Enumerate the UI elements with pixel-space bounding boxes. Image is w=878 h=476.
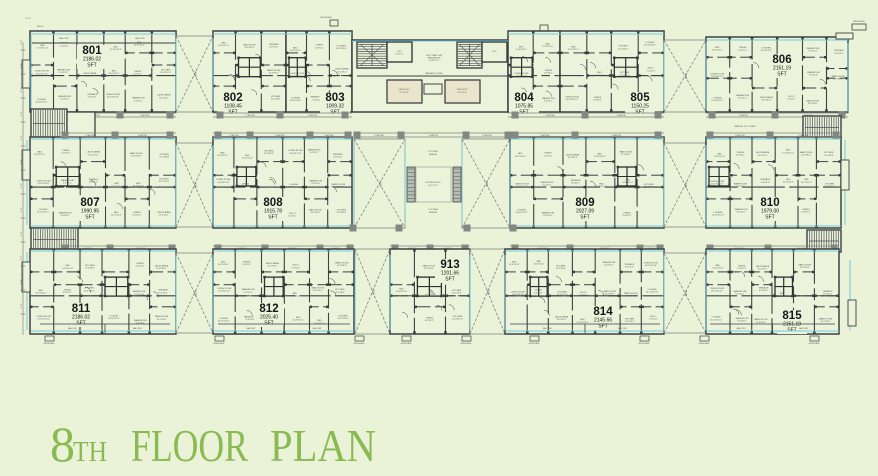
svg-text:13'-2"X6'-4": 13'-2"X6'-4" — [557, 319, 567, 321]
svg-text:13'-2"X6'-4": 13'-2"X6'-4" — [159, 215, 169, 217]
svg-text:MAID ROOM: MAID ROOM — [243, 43, 256, 46]
svg-text:10'-9"X8'-0": 10'-9"X8'-0" — [269, 73, 279, 75]
svg-text:815: 815 — [782, 310, 802, 322]
svg-text:LAY-BY AREA: LAY-BY AREA — [555, 315, 569, 318]
svg-text:14'-2.5": 14'-2.5" — [21, 135, 23, 141]
svg-text:8'-0"X5'-0": 8'-0"X5'-0" — [246, 319, 255, 321]
svg-text:9'-0"X5'-2": 9'-0"X5'-2" — [738, 98, 747, 100]
svg-text:7'-4"X4'-2": 7'-4"X4'-2" — [647, 70, 656, 72]
svg-text:LAY-BY AREA: LAY-BY AREA — [566, 154, 580, 157]
svg-text:14'-2.5": 14'-2.5" — [21, 255, 23, 261]
svg-text:VOID: VOID — [379, 180, 383, 186]
svg-text:20'-0"X13'-10": 20'-0"X13'-10" — [291, 76, 303, 78]
svg-text:20'-0"X13'-10": 20'-0"X13'-10" — [107, 97, 119, 99]
svg-text:20'-0"X13'-10": 20'-0"X13'-10" — [512, 294, 524, 296]
svg-text:10'-6"X12'-0": 10'-6"X12'-0" — [509, 264, 520, 266]
svg-text:WASHROOM: WASHROOM — [736, 317, 749, 320]
svg-text:WASHROOM: WASHROOM — [61, 179, 74, 182]
svg-text:10'-6"X12'-0": 10'-6"X12'-0" — [777, 295, 788, 297]
svg-text:BRIDGE 10'-0" WIDE: BRIDGE 10'-0" WIDE — [735, 126, 756, 128]
svg-text:9'-0"X5'-2": 9'-0"X5'-2" — [543, 184, 552, 186]
svg-text:PLANTER: PLANTER — [374, 134, 384, 137]
svg-text:8'-0"X5'-0": 8'-0"X5'-0" — [737, 211, 746, 213]
svg-text:10'-6"X12'-0": 10'-6"X12'-0" — [34, 154, 45, 156]
svg-text:9'-0"X5'-2": 9'-0"X5'-2" — [244, 292, 253, 294]
svg-text:12'-10"X12'-0": 12'-10"X12'-0" — [782, 152, 794, 154]
svg-text:14'-2.5": 14'-2.5" — [25, 18, 31, 20]
svg-text:16'-10"X12'-0": 16'-10"X12'-0" — [288, 186, 300, 188]
svg-text:6'-0"X5'-2": 6'-0"X5'-2" — [802, 211, 811, 213]
svg-text:14'-2.5": 14'-2.5" — [21, 303, 23, 309]
svg-text:10'-4"X12'-0": 10'-4"X12'-0" — [452, 318, 463, 320]
svg-text:LAY-BY AREA: LAY-BY AREA — [157, 211, 171, 214]
svg-text:12'-4"X8'-6": 12'-4"X8'-6" — [625, 321, 635, 323]
svg-text:PLANTER: PLANTER — [612, 134, 622, 137]
svg-text:10'-6"X12'-0": 10'-6"X12'-0" — [714, 156, 725, 158]
svg-text:13'-2"X6'-4": 13'-2"X6'-4" — [337, 71, 347, 73]
svg-text:12'-4"X8'-6": 12'-4"X8'-6" — [452, 292, 462, 294]
svg-text:16'-10"X12'-0": 16'-10"X12'-0" — [712, 214, 724, 216]
svg-text:9'-0"X5'-2": 9'-0"X5'-2" — [134, 100, 143, 102]
svg-text:WASHROOM: WASHROOM — [308, 148, 321, 151]
svg-text:14'-2.5": 14'-2.5" — [21, 63, 23, 69]
svg-text:14'-2.5": 14'-2.5" — [21, 231, 23, 237]
svg-text:LAY-BY AREA: LAY-BY AREA — [155, 264, 169, 267]
svg-text:6'-0"X5'-2": 6'-0"X5'-2" — [534, 292, 543, 294]
svg-text:BRIDGE FACE: BRIDGE FACE — [320, 16, 332, 19]
svg-text:BRIDGE FACE: BRIDGE FACE — [853, 20, 865, 23]
svg-text:10'-4"X12'-0": 10'-4"X12'-0" — [160, 72, 171, 74]
svg-text:PLANTER: PLANTER — [482, 134, 492, 137]
svg-text:WASHROOM: WASHROOM — [542, 97, 555, 100]
svg-text:10'-9"X8'-0": 10'-9"X8'-0" — [821, 321, 831, 323]
svg-text:SFT: SFT — [76, 321, 85, 327]
svg-text:TERRACE: TERRACE — [333, 153, 344, 156]
svg-text:LAY-BY AREA: LAY-BY AREA — [266, 262, 280, 265]
svg-text:WASHROOM: WASHROOM — [57, 68, 70, 71]
svg-text:PLANTER: PLANTER — [617, 114, 627, 117]
svg-text:10'-6"X12'-0": 10'-6"X12'-0" — [515, 156, 526, 158]
svg-text:13'-1"X7'-0": 13'-1"X7'-0" — [428, 185, 439, 187]
svg-text:BRIDGE: BRIDGE — [429, 154, 437, 156]
svg-text:8'-0"X5'-0": 8'-0"X5'-0" — [60, 99, 69, 101]
svg-text:10'-9"X8'-0": 10'-9"X8'-0" — [833, 79, 843, 81]
svg-text:9'-0"X5'-2": 9'-0"X5'-2" — [310, 152, 319, 154]
svg-text:10'-6"X12'-0": 10'-6"X12'-0" — [293, 320, 304, 322]
svg-text:10'-6"X12'-0": 10'-6"X12'-0" — [35, 293, 46, 295]
svg-text:12'-10"X12'-0": 12'-10"X12'-0" — [577, 322, 589, 324]
svg-text:913: 913 — [440, 259, 459, 271]
svg-text:MAID ROOM: MAID ROOM — [799, 263, 812, 266]
svg-text:SFT: SFT — [765, 215, 774, 221]
svg-text:13'-2"X6'-4": 13'-2"X6'-4" — [85, 76, 95, 78]
svg-text:10'-6"X12'-0": 10'-6"X12'-0" — [783, 181, 794, 183]
svg-text:SFT: SFT — [635, 110, 644, 116]
svg-text:BALCONY: BALCONY — [737, 327, 747, 330]
svg-text:20'-0"X13'-10": 20'-0"X13'-10" — [515, 76, 527, 78]
svg-text:LAY-BY AREA: LAY-BY AREA — [83, 72, 97, 75]
svg-text:14'-9"X12'-0": 14'-9"X12'-0" — [533, 264, 544, 266]
svg-text:MAID ROOM: MAID ROOM — [603, 290, 616, 293]
svg-text:805: 805 — [630, 92, 650, 104]
svg-text:6'-0"X5'-2": 6'-0"X5'-2" — [63, 292, 72, 294]
svg-text:PLANTER: PLANTER — [85, 134, 95, 137]
svg-text:10'-6"X12'-0": 10'-6"X12'-0" — [596, 186, 607, 188]
svg-text:10'-4"X12'-0": 10'-4"X12'-0" — [619, 75, 630, 77]
svg-text:9'-0" WIDE: 9'-0" WIDE — [428, 209, 438, 211]
svg-text:12'-4"X8'-6": 12'-4"X8'-6" — [824, 155, 834, 157]
svg-text:12'-10"X12'-0": 12'-10"X12'-0" — [289, 296, 301, 298]
svg-text:LAY-BY AREA: LAY-BY AREA — [335, 68, 349, 71]
svg-text:10'-6"X12'-0": 10'-6"X12'-0" — [108, 73, 119, 75]
svg-text:TERRACE: TERRACE — [624, 263, 635, 266]
svg-text:8: 8 — [50, 416, 75, 471]
svg-text:16'-10"X12'-0": 16'-10"X12'-0" — [516, 212, 528, 214]
svg-text:10'-9"X8'-0": 10'-9"X8'-0" — [756, 322, 766, 324]
svg-text:7'-4"X4'-2": 7'-4"X4'-2" — [787, 99, 796, 101]
svg-text:16'-10"X12'-0": 16'-10"X12'-0" — [108, 318, 120, 320]
svg-text:PASSAGE 9' WIDE: PASSAGE 9' WIDE — [425, 72, 443, 75]
svg-text:20'-0"X13'-10": 20'-0"X13'-10" — [217, 182, 229, 184]
svg-text:6'-0"X5'-2": 6'-0"X5'-2" — [544, 155, 553, 157]
svg-text:BALCONY: BALCONY — [618, 327, 628, 330]
svg-text:WASHROOM: WASHROOM — [132, 97, 145, 100]
svg-text:TERRACE: TERRACE — [823, 290, 834, 293]
svg-text:10'-4"X12'-0": 10'-4"X12'-0" — [824, 186, 835, 188]
svg-text:9'-0" WIDE: 9'-0" WIDE — [428, 151, 438, 153]
svg-text:SFT: SFT — [519, 110, 528, 116]
svg-text:10'-6"X12'-0": 10'-6"X12'-0" — [568, 49, 579, 51]
svg-text:14'-9"X12'-0": 14'-9"X12'-0" — [622, 182, 633, 184]
svg-text:812: 812 — [259, 303, 278, 315]
svg-text:13'-2"X6'-4": 13'-2"X6'-4" — [568, 157, 578, 159]
svg-text:WARD ROOM: WARD ROOM — [819, 317, 833, 320]
svg-text:BALCONY: BALCONY — [246, 327, 256, 330]
svg-text:PLANTER: PLANTER — [735, 134, 745, 137]
svg-text:20'-0"X13'-10": 20'-0"X13'-10" — [711, 184, 723, 186]
svg-text:6'-0"X5'-2": 6'-0"X5'-2" — [136, 266, 145, 268]
svg-text:WASHROOM: WASHROOM — [735, 208, 748, 211]
svg-text:12'-4"X8'-6": 12'-4"X8'-6" — [618, 48, 628, 50]
svg-text:20'-0"X13'-10": 20'-0"X13'-10" — [36, 73, 48, 75]
svg-text:16'-10"X12'-0": 16'-10"X12'-0" — [290, 100, 302, 102]
svg-text:WARD ROOM: WARD ROOM — [754, 318, 768, 321]
svg-text:20'-0"X13'-10": 20'-0"X13'-10" — [645, 265, 657, 267]
svg-text:12'-4"X8'-6": 12'-4"X8'-6" — [556, 268, 566, 270]
svg-text:10'-4"X12'-0": 10'-4"X12'-0" — [761, 50, 772, 52]
svg-text:TERRACE: TERRACE — [571, 179, 582, 182]
svg-text:MAID ROOM: MAID ROOM — [309, 209, 322, 212]
svg-text:20'-0"X13'-10": 20'-0"X13'-10" — [566, 99, 578, 101]
svg-text:WASHROOM: WASHROOM — [807, 47, 820, 50]
svg-text:WASHROOM: WASHROOM — [134, 319, 147, 322]
svg-text:12'-4"X8'-6": 12'-4"X8'-6" — [85, 267, 95, 269]
svg-text:BALCONY: BALCONY — [543, 327, 553, 330]
svg-text:13'-2"X6'-4": 13'-2"X6'-4" — [159, 97, 169, 99]
svg-text:6'-0"X5'-2": 6'-0"X5'-2" — [623, 215, 632, 217]
svg-text:811: 811 — [72, 303, 91, 315]
svg-text:BALCONY: BALCONY — [799, 327, 809, 330]
svg-text:8'-0"X4'-0": 8'-0"X4'-0" — [571, 182, 580, 184]
svg-text:SFT: SFT — [445, 277, 454, 283]
svg-text:8'-0"X4'-0": 8'-0"X4'-0" — [823, 294, 832, 296]
svg-text:8'-0"X5'-0": 8'-0"X5'-0" — [605, 264, 614, 266]
svg-text:BRIDGE: BRIDGE — [37, 26, 43, 28]
svg-text:WARD ROOM: WARD ROOM — [155, 315, 169, 318]
svg-text:VOID: VOID — [194, 290, 198, 296]
svg-text:10'-6"X12'-0": 10'-6"X12'-0" — [217, 155, 228, 157]
svg-text:12'-4"X8'-6": 12'-4"X8'-6" — [644, 187, 654, 189]
svg-text:8'-0"X7'-0": 8'-0"X7'-0" — [396, 54, 404, 56]
svg-text:TH: TH — [73, 436, 107, 468]
svg-text:20'-0"X13'-10": 20'-0"X13'-10" — [711, 291, 723, 293]
svg-text:WARD ROOM: WARD ROOM — [267, 69, 281, 72]
svg-text:14'-9"X12'-0": 14'-9"X12'-0" — [542, 46, 553, 48]
svg-text:WASHROOM: WASHROOM — [58, 95, 71, 98]
svg-text:10'-4"X12'-0": 10'-4"X12'-0" — [557, 294, 568, 296]
svg-text:WARD ROOM: WARD ROOM — [624, 292, 638, 295]
svg-text:12'-4"X7'-8": 12'-4"X7'-8" — [457, 92, 467, 94]
svg-text:10'-9"X8'-0": 10'-9"X8'-0" — [626, 296, 636, 298]
svg-text:809: 809 — [575, 197, 594, 209]
svg-text:801: 801 — [82, 45, 102, 57]
svg-text:8'-0"X4'-0": 8'-0"X4'-0" — [270, 47, 279, 49]
svg-text:6'-0"X5'-2": 6'-0"X5'-2" — [736, 154, 745, 156]
svg-text:PLANTER: PLANTER — [739, 114, 749, 117]
svg-text:16'-10"X12'-0": 16'-10"X12'-0" — [644, 44, 656, 46]
svg-text:WASHROOM: WASHROOM — [734, 290, 747, 293]
svg-text:20'-0"X13'-10": 20'-0"X13'-10" — [218, 291, 230, 293]
svg-text:PLANTER: PLANTER — [245, 114, 255, 117]
svg-text:808: 808 — [263, 197, 283, 209]
svg-text:VOID: VOID — [684, 182, 688, 188]
svg-text:TERRACE: TERRACE — [158, 289, 169, 292]
svg-text:8'-0"X5'-0": 8'-0"X5'-0" — [738, 320, 747, 322]
svg-text:WASHROOM: WASHROOM — [309, 179, 322, 182]
svg-text:BALCONY: BALCONY — [68, 327, 78, 330]
svg-text:10'-9"X8'-0": 10'-9"X8'-0" — [313, 290, 323, 292]
svg-text:PLANTER: PLANTER — [140, 114, 150, 117]
svg-text:BALCONY: BALCONY — [133, 327, 143, 330]
svg-text:10'-6"X12'-0": 10'-6"X12'-0" — [712, 50, 723, 52]
svg-text:14'-9"X12'-0": 14'-9"X12'-0" — [62, 268, 73, 270]
svg-text:10'-4"X12'-0": 10'-4"X12'-0" — [84, 290, 95, 292]
svg-text:PLANTER: PLANTER — [798, 134, 808, 137]
svg-text:CIRCU-LIFT: CIRCU-LIFT — [398, 89, 410, 91]
svg-text:16'-10"X12'-0": 16'-10"X12'-0" — [710, 319, 722, 321]
svg-text:TERRACE: TERRACE — [760, 178, 771, 181]
svg-text:14'-2.5": 14'-2.5" — [21, 39, 23, 45]
svg-text:9'-0"X5'-2": 9'-0"X5'-2" — [544, 100, 553, 102]
svg-text:SITTING DECK: SITTING DECK — [425, 182, 441, 184]
svg-text:20'-0"X13'-10": 20'-0"X13'-10" — [711, 76, 723, 78]
svg-text:16'-10"X12'-0": 16'-10"X12'-0" — [36, 102, 48, 104]
svg-text:SFT: SFT — [580, 215, 589, 221]
svg-text:6'-0"X5'-2": 6'-0"X5'-2" — [738, 50, 747, 52]
svg-text:VOID: VOID — [684, 290, 688, 296]
svg-text:MAID ROOM: MAID ROOM — [130, 152, 143, 155]
svg-text:12'-10"X12'-0": 12'-10"X12'-0" — [110, 49, 122, 51]
svg-text:TERRACE: TERRACE — [834, 49, 845, 52]
svg-text:14'-2.5": 14'-2.5" — [21, 111, 23, 117]
svg-text:6'-0"X5'-2": 6'-0"X5'-2" — [315, 47, 324, 49]
svg-text:MAID ROOM: MAID ROOM — [800, 151, 813, 154]
svg-text:VOID: VOID — [684, 73, 688, 79]
svg-text:SFT: SFT — [85, 215, 94, 221]
svg-text:10'-9"X8'-0": 10'-9"X8'-0" — [808, 103, 818, 105]
svg-text:8'-0"X4'-0": 8'-0"X4'-0" — [761, 182, 770, 184]
svg-text:810: 810 — [760, 197, 779, 209]
svg-text:CIRCU-LIFT: CIRCU-LIFT — [456, 89, 468, 91]
svg-text:8'-0"X5'-0": 8'-0"X5'-0" — [543, 215, 552, 217]
svg-text:13'-2"X6'-4": 13'-2"X6'-4" — [761, 100, 771, 102]
svg-text:12'-4"X7'-8": 12'-4"X7'-8" — [399, 92, 409, 94]
svg-text:6'-0"X5'-2": 6'-0"X5'-2" — [737, 268, 746, 270]
svg-text:14'-2.5": 14'-2.5" — [21, 87, 23, 93]
svg-text:14'-2.5": 14'-2.5" — [21, 279, 23, 285]
svg-text:WASHROOM: WASHROOM — [807, 71, 820, 74]
svg-text:8'-0"X5'-0": 8'-0"X5'-0" — [809, 75, 818, 77]
svg-text:TERRACE: TERRACE — [269, 43, 280, 46]
svg-text:10'-9"X8'-0": 10'-9"X8'-0" — [800, 267, 810, 269]
svg-text:PLANTER: PLANTER — [138, 134, 148, 137]
svg-text:16'-10"X12'-0": 16'-10"X12'-0" — [37, 212, 49, 214]
svg-text:MAID ROOM: MAID ROOM — [423, 265, 436, 268]
svg-text:TERRACE: TERRACE — [88, 178, 99, 181]
svg-text:MAID ROOM: MAID ROOM — [311, 287, 324, 290]
svg-text:PLANTER: PLANTER — [324, 134, 334, 137]
svg-text:10'-9"X8'-0": 10'-9"X8'-0" — [244, 47, 254, 49]
svg-text:814: 814 — [593, 306, 613, 318]
svg-text:PLANTER: PLANTER — [429, 134, 439, 137]
svg-text:14'-2.5": 14'-2.5" — [21, 183, 23, 189]
svg-text:8'-0"X5'-0": 8'-0"X5'-0" — [311, 183, 320, 185]
svg-text:13'-2"X6'-4": 13'-2"X6'-4" — [88, 154, 98, 156]
svg-text:14'-9"X12'-0": 14'-9"X12'-0" — [133, 185, 144, 187]
svg-text:10'-6"X12'-0": 10'-6"X12'-0" — [218, 264, 229, 266]
svg-text:13'-2"X6'-4": 13'-2"X6'-4" — [757, 269, 767, 271]
svg-text:MAID ROOM: MAID ROOM — [620, 150, 633, 153]
svg-text:7'-4"X4'-2": 7'-4"X4'-2" — [649, 319, 658, 321]
svg-text:10'-6"X12'-0": 10'-6"X12'-0" — [516, 49, 527, 51]
svg-text:6'-0"X5'-2": 6'-0"X5'-2" — [60, 45, 69, 47]
svg-text:6'-0"X5'-2": 6'-0"X5'-2" — [242, 264, 251, 266]
svg-text:LAY-BY AREA: LAY-BY AREA — [760, 96, 774, 99]
svg-text:SFT: SFT — [268, 215, 277, 221]
svg-text:13'-2"X6'-4": 13'-2"X6'-4" — [156, 268, 166, 270]
svg-text:806: 806 — [772, 54, 791, 66]
svg-text:10'-9"X8'-0": 10'-9"X8'-0" — [621, 154, 631, 156]
svg-text:WARD ROOM: WARD ROOM — [831, 75, 845, 78]
svg-text:10'-6"X12'-0": 10'-6"X12'-0" — [111, 215, 122, 217]
svg-text:WASHROOM: WASHROOM — [736, 94, 749, 97]
svg-text:10'-9"X8'-0": 10'-9"X8'-0" — [424, 268, 434, 270]
svg-text:LAY-BY AREA: LAY-BY AREA — [87, 151, 101, 154]
svg-text:LAY-BY AREA: LAY-BY AREA — [157, 94, 171, 97]
svg-text:14'-9"X12'-0": 14'-9"X12'-0" — [425, 294, 436, 296]
svg-text:12'-4"X8'-6": 12'-4"X8'-6" — [336, 212, 346, 214]
svg-text:SFT: SFT — [330, 110, 339, 116]
svg-text:12'-10"X12'-0": 12'-10"X12'-0" — [111, 186, 123, 188]
svg-text:SFT: SFT — [777, 72, 786, 78]
svg-text:14'-2.5": 14'-2.5" — [21, 159, 23, 165]
svg-text:PLANTER: PLANTER — [308, 114, 318, 117]
svg-text:10'-4"X12'-0": 10'-4"X12'-0" — [158, 181, 169, 183]
svg-text:7'-4"X4'-2": 7'-4"X4'-2" — [291, 267, 300, 269]
svg-text:SFT: SFT — [87, 63, 96, 69]
svg-text:VOID: VOID — [372, 288, 376, 294]
svg-text:VOID: VOID — [487, 288, 491, 294]
svg-text:BALCONY: BALCONY — [135, 37, 145, 40]
svg-text:9'-0"X5'-2": 9'-0"X5'-2" — [135, 294, 144, 296]
svg-text:16'-10"X12'-0": 16'-10"X12'-0" — [218, 321, 230, 323]
svg-text:7'-4"X4'-2": 7'-4"X4'-2" — [288, 216, 297, 218]
svg-text:10'-4"X12'-0": 10'-4"X12'-0" — [338, 318, 349, 320]
svg-text:20'-0"X13'-10": 20'-0"X13'-10" — [516, 186, 528, 188]
svg-text:VOID: VOID — [485, 180, 489, 186]
svg-text:TERRACE: TERRACE — [758, 287, 769, 290]
svg-text:SFT: SFT — [228, 110, 237, 116]
svg-text:VOID: VOID — [194, 182, 198, 188]
svg-text:PLANTER: PLANTER — [275, 134, 285, 137]
svg-text:9'-0"X5'-2": 9'-0"X5'-2" — [809, 51, 818, 53]
svg-text:8'-0"X4'-0": 8'-0"X4'-0" — [89, 182, 98, 184]
svg-text:WASHROOM: WASHROOM — [734, 183, 747, 186]
svg-text:12'-4"X8'-6": 12'-4"X8'-6" — [271, 99, 281, 101]
svg-text:PLANTER: PLANTER — [545, 114, 555, 117]
svg-text:BALCONY: BALCONY — [312, 327, 322, 330]
svg-text:WASHROOM: WASHROOM — [541, 181, 554, 184]
svg-text:14'-9"X12'-0": 14'-9"X12'-0" — [594, 75, 605, 77]
svg-text:8'-0"X4'-0": 8'-0"X4'-0" — [333, 157, 342, 159]
svg-text:FLOOR: FLOOR — [131, 420, 248, 471]
svg-text:WASHROOM: WASHROOM — [242, 288, 255, 291]
svg-text:16'-10"X12'-0": 16'-10"X12'-0" — [646, 291, 658, 293]
svg-text:10'-9"X8'-0": 10'-9"X8'-0" — [310, 212, 320, 214]
svg-text:20'-0"X13'-10": 20'-0"X13'-10" — [38, 318, 50, 320]
svg-text:10'-6"X12'-0": 10'-6"X12'-0" — [712, 267, 723, 269]
svg-text:10'-6"X12'-0": 10'-6"X12'-0" — [37, 48, 48, 50]
svg-text:WASHROOM: WASHROOM — [541, 212, 554, 215]
svg-text:14'-9"X12'-0": 14'-9"X12'-0" — [801, 182, 812, 184]
svg-text:12'-4"X8'-6": 12'-4"X8'-6" — [264, 153, 274, 155]
svg-text:20'-0"X13'-10": 20'-0"X13'-10" — [289, 153, 301, 155]
svg-text:13'-2"X6'-4": 13'-2"X6'-4" — [757, 155, 767, 157]
svg-text:7'-4"X4'-2": 7'-4"X4'-2" — [579, 295, 588, 297]
svg-text:10'-9"X8'-0": 10'-9"X8'-0" — [157, 319, 167, 321]
svg-text:14'-9"X12'-0": 14'-9"X12'-0" — [134, 45, 145, 47]
svg-text:807: 807 — [80, 197, 99, 209]
svg-text:6'-0"X5'-2": 6'-0"X5'-2" — [133, 214, 142, 216]
svg-text:6'-0"X5'-2": 6'-0"X5'-2" — [593, 100, 602, 102]
svg-text:8'-0"X4'-0": 8'-0"X4'-0" — [759, 290, 768, 292]
svg-text:12'-4"X8'-6": 12'-4"X8'-6" — [335, 292, 345, 294]
svg-text:WASHROOM: WASHROOM — [133, 290, 146, 293]
svg-text:BALCONY: BALCONY — [59, 37, 69, 40]
svg-text:WASHROOM: WASHROOM — [603, 261, 616, 264]
svg-text:9'-0"X5'-2": 9'-0"X5'-2" — [59, 72, 68, 74]
svg-text:6'-0"X5'-2": 6'-0"X5'-2" — [133, 74, 142, 76]
svg-text:803: 803 — [325, 92, 344, 104]
svg-text:VOID: VOID — [194, 71, 198, 77]
svg-text:10'-9"X8'-0": 10'-9"X8'-0" — [801, 155, 811, 157]
svg-text:10'-9"X8'-0": 10'-9"X8'-0" — [131, 156, 141, 158]
svg-text:WASHROOM: WASHROOM — [59, 212, 72, 215]
svg-text:20'-0"X13'-10": 20'-0"X13'-10" — [38, 183, 50, 185]
svg-text:10'-4"X12'-0": 10'-4"X12'-0" — [336, 48, 347, 50]
svg-text:13'-2"X6'-4": 13'-2"X6'-4" — [267, 265, 277, 267]
svg-text:8'-0"X5'-0": 8'-0"X5'-0" — [61, 215, 70, 217]
